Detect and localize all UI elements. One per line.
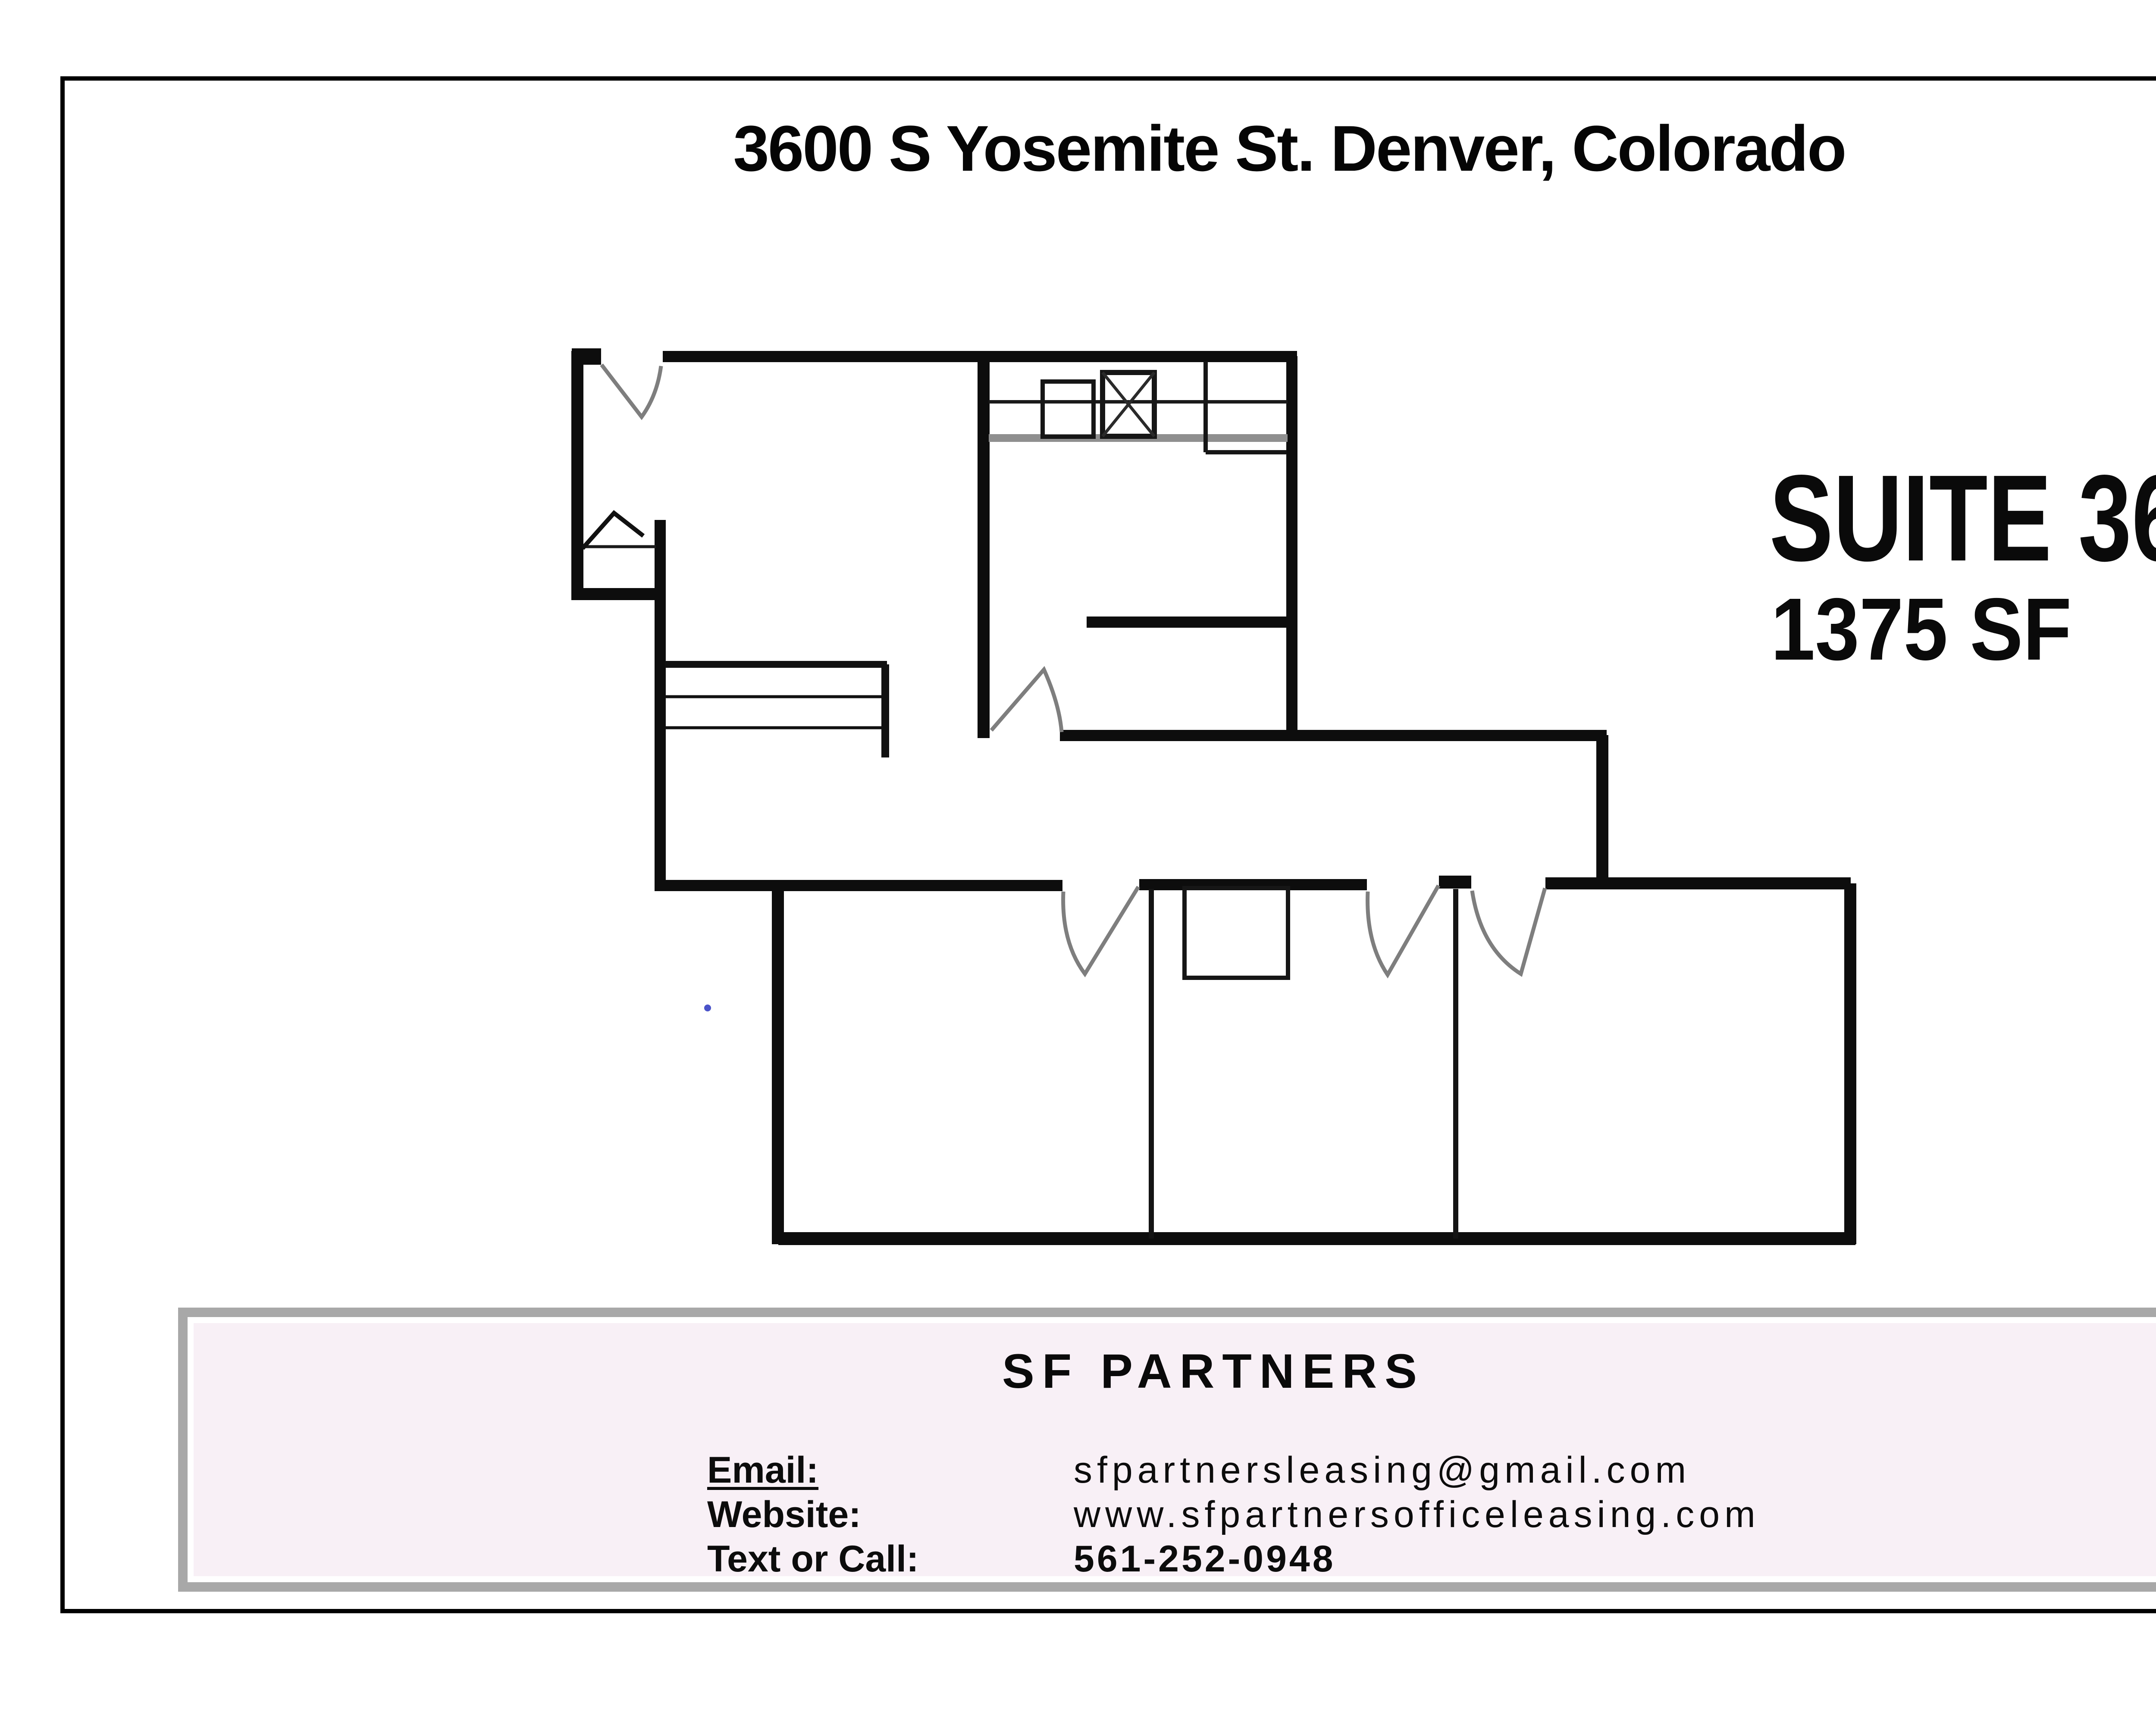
contact-row-phone: Text or Call: 561-252-0948 bbox=[707, 1537, 2156, 1581]
kitchen-door-swing-icon bbox=[991, 670, 1062, 732]
contact-rows: Email: sfpartnersleasing@gmail.com Websi… bbox=[707, 1448, 2156, 1581]
suite-label: SUITE 360 1375 SF bbox=[1703, 457, 2139, 679]
partitions bbox=[1151, 889, 1456, 1239]
desk-fixture bbox=[665, 664, 887, 757]
appliance-box bbox=[1043, 382, 1094, 437]
suite-name: SUITE 360 bbox=[1703, 457, 2139, 580]
page-title: 3600 S Yosemite St. Denver, Colorado bbox=[76, 111, 2156, 186]
entry-door-swing-icon bbox=[602, 365, 661, 417]
email-label: Email: bbox=[707, 1448, 1074, 1493]
email-value: sfpartnersleasing@gmail.com bbox=[1074, 1448, 1691, 1493]
room1-door-swing-icon bbox=[1063, 887, 1138, 974]
room2-door-swing-icon bbox=[1368, 886, 1438, 975]
website-value: www.sfpartnersofficeleasing.com bbox=[1074, 1493, 1760, 1537]
walls bbox=[572, 351, 1855, 1244]
brand-name: SF PARTNERS bbox=[0, 1343, 2156, 1399]
shaft-x-icon bbox=[1103, 372, 1154, 436]
phone-value: 561-252-0948 bbox=[1074, 1537, 1336, 1581]
contact-row-website: Website: www.sfpartnersofficeleasing.com bbox=[707, 1493, 2156, 1537]
blue-speck bbox=[704, 1005, 711, 1011]
left-closet bbox=[583, 513, 656, 548]
kitchen-fixtures bbox=[989, 361, 1288, 452]
middle-room-closet bbox=[1185, 888, 1288, 978]
room3-door-swing-icon bbox=[1472, 888, 1545, 974]
website-label: Website: bbox=[707, 1493, 1074, 1537]
phone-label: Text or Call: bbox=[707, 1537, 1074, 1581]
contact-row-email: Email: sfpartnersleasing@gmail.com bbox=[707, 1448, 2156, 1493]
suite-area: 1375 SF bbox=[1703, 580, 2139, 679]
closet-door-caret-icon bbox=[583, 513, 643, 548]
flyer-page: 3600 S Yosemite St. Denver, Colorado SUI… bbox=[0, 0, 2156, 1715]
